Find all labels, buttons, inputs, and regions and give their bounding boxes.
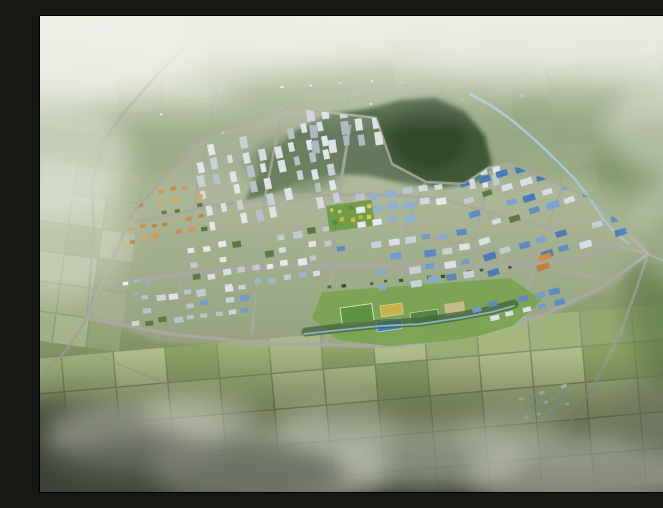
south-row-west-item (225, 297, 234, 303)
central-park-trees-item (359, 215, 363, 219)
south-row-west-item (145, 320, 153, 326)
commercial-center-item (372, 218, 382, 225)
midrise-central-item (207, 273, 215, 280)
midrise-central-item (254, 278, 261, 284)
midrise-central-item (313, 270, 321, 276)
midrise-central-item (193, 273, 201, 280)
midrise-central-item (277, 234, 285, 241)
midrise-central-item (283, 274, 291, 280)
scene-svg (40, 16, 663, 492)
midrise-central-item (307, 227, 316, 235)
commercial-center-item (436, 197, 447, 205)
midrise-central-item (266, 264, 273, 270)
midrise-central-item (309, 255, 316, 261)
south-row-west-item (216, 311, 223, 316)
commercial-center-item (389, 216, 398, 222)
midrise-central-item (190, 262, 198, 268)
south-row-west-item (131, 321, 139, 327)
commercial-center-item (356, 206, 366, 213)
park-tree-row-item (341, 284, 346, 288)
park-tree-row-item (508, 266, 511, 269)
south-row-west-item (158, 316, 167, 322)
central-park-trees-item (339, 217, 344, 222)
midrise-central-item (223, 268, 232, 275)
midrise-central-item (237, 266, 245, 273)
aerial-city-rendering (40, 16, 663, 492)
south-row-west-item (228, 309, 236, 315)
south-row-west-item (241, 308, 249, 313)
south-row-west-item (238, 284, 246, 289)
commercial-center-item (405, 215, 416, 223)
cloud-puff-2 (280, 406, 400, 450)
midrise-central-item (232, 240, 242, 248)
midrise-central-item (297, 258, 307, 266)
south-row-west-item (186, 303, 194, 309)
commercial-center-item (434, 184, 443, 190)
midrise-central-item (278, 247, 286, 253)
south-row-west-item (200, 313, 207, 318)
commercial-center-item (357, 221, 366, 228)
south-row-west-item (240, 294, 250, 301)
distant-hamlet-speckles-item (131, 137, 134, 139)
midrise-central-item (219, 257, 226, 263)
commercial-center-item (418, 185, 428, 192)
midrise-central-item (322, 226, 329, 232)
central-park-trees-item (332, 220, 337, 225)
hamlet-west-item (134, 293, 139, 296)
park-tree-row-item (399, 279, 403, 283)
midrise-central-item (293, 231, 303, 239)
midrise-central-item (252, 264, 260, 270)
south-row-west-item (174, 316, 184, 323)
south-row-west-item (141, 295, 148, 300)
midrise-central-item (324, 240, 331, 246)
south-row-west-item (225, 286, 234, 292)
south-fields-patchwork-cell (580, 307, 634, 346)
park-tree-row-item (327, 285, 331, 288)
midrise-central-item (196, 289, 207, 298)
commercial-center-item (355, 193, 365, 201)
commercial-center-item (403, 201, 415, 210)
central-park-trees-item (330, 208, 334, 212)
commercial-center-item (420, 197, 430, 205)
south-row-west-item (156, 294, 166, 301)
midrise-central-item (267, 277, 276, 284)
cloud-puff-1 (145, 394, 255, 438)
commercial-center-item (387, 202, 398, 210)
commercial-center-item (369, 194, 378, 201)
cloud-puff-3 (455, 412, 565, 452)
midrise-central-item (299, 271, 307, 277)
south-row-west-item (184, 289, 192, 294)
south-row-west-item (169, 293, 179, 300)
midrise-central-item (218, 241, 227, 248)
cloud-puff-3-shape (455, 412, 565, 452)
park-tree-row-item (370, 282, 374, 285)
midrise-central-item (265, 250, 275, 258)
central-park-trees-item (351, 217, 356, 222)
midrise-central-item (308, 241, 316, 248)
midrise-central-item (203, 246, 211, 252)
hamlet-west-item (122, 282, 128, 286)
central-park-trees-item (349, 205, 353, 209)
central-park-trees-item (367, 214, 372, 219)
south-row-west-item (187, 315, 194, 320)
park-tree-row-item (441, 275, 446, 279)
commercial-center-item (402, 187, 412, 195)
commercial-center-item (372, 205, 382, 213)
south-row-west-item (143, 308, 152, 314)
central-park-trees-item (367, 204, 372, 209)
cloud-puff-2-shape (280, 406, 400, 450)
central-park-trees-item (338, 210, 342, 214)
park-tree-row-item (480, 269, 484, 272)
hamlet-west-item (134, 279, 140, 283)
park-tree-row-item (384, 280, 388, 283)
midrise-central-item (280, 260, 288, 267)
south-row-west-item (200, 300, 208, 306)
midrise-central-item (187, 247, 194, 253)
hamlet-west-item (146, 281, 151, 284)
commercial-center-item (385, 190, 396, 198)
cloud-puff-1-shape (145, 394, 255, 438)
